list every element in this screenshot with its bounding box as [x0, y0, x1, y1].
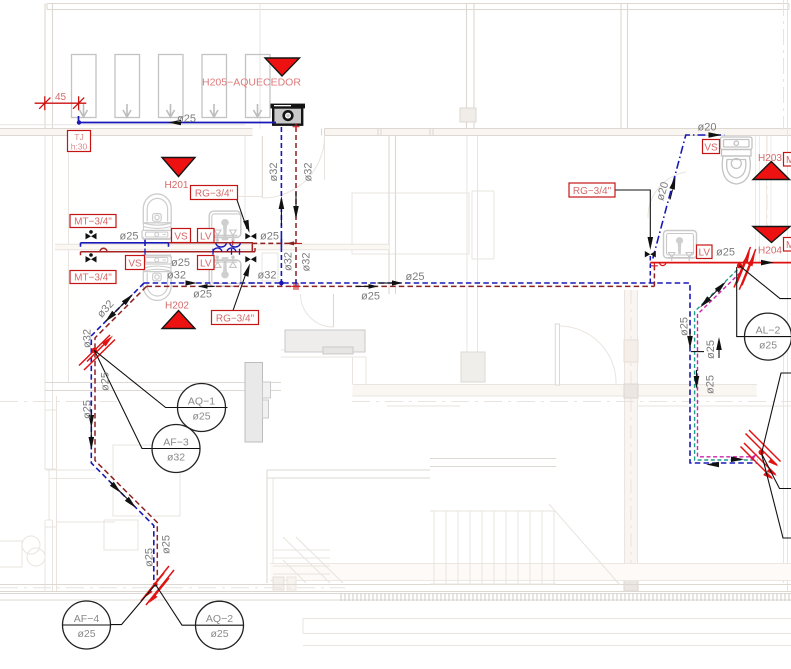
- svg-text:ø25: ø25: [716, 247, 735, 259]
- svg-text:H201: H201: [165, 180, 189, 191]
- svg-text:RG−3/4": RG−3/4": [216, 314, 255, 325]
- svg-text:AQ−2: AQ−2: [206, 613, 233, 625]
- svg-text:ø32: ø32: [167, 452, 185, 464]
- svg-text:ø25: ø25: [171, 257, 190, 269]
- svg-text:MT−3/4": MT−3/4": [74, 217, 112, 228]
- svg-text:ø25: ø25: [705, 340, 717, 359]
- svg-text:ø25: ø25: [260, 231, 279, 243]
- svg-text:ø25: ø25: [144, 548, 156, 567]
- svg-text:ø25: ø25: [192, 411, 210, 423]
- svg-text:ø25: ø25: [77, 628, 95, 640]
- svg-text:AF−3: AF−3: [163, 437, 189, 449]
- svg-text:h:30: h:30: [71, 142, 88, 152]
- svg-text:RG−3/4": RG−3/4": [195, 189, 234, 200]
- svg-text:AQ−1: AQ−1: [188, 396, 215, 408]
- svg-text:ø25: ø25: [100, 372, 112, 391]
- svg-text:ø32: ø32: [167, 270, 186, 282]
- svg-text:M: M: [786, 155, 791, 166]
- svg-text:ø32: ø32: [268, 163, 280, 182]
- svg-text:ø25: ø25: [210, 628, 228, 640]
- svg-text:ø32: ø32: [283, 252, 295, 271]
- svg-text:ø25: ø25: [82, 400, 94, 419]
- svg-text:ø32: ø32: [301, 253, 313, 272]
- svg-text:ø25: ø25: [193, 289, 212, 301]
- svg-text:M: M: [786, 240, 791, 251]
- svg-text:ø25: ø25: [161, 535, 173, 554]
- svg-text:ø20: ø20: [698, 122, 717, 134]
- svg-text:ø32: ø32: [303, 163, 315, 182]
- svg-text:ø32: ø32: [258, 270, 277, 282]
- svg-text:H203: H203: [758, 153, 782, 164]
- svg-text:RG−3/4": RG−3/4": [573, 186, 612, 197]
- svg-text:ø25: ø25: [120, 231, 139, 243]
- svg-text:ø25: ø25: [679, 317, 691, 336]
- svg-text:VS: VS: [704, 143, 718, 154]
- svg-text:45: 45: [55, 92, 67, 103]
- svg-text:TJ: TJ: [74, 132, 83, 142]
- svg-text:ø25: ø25: [361, 291, 380, 303]
- svg-text:ø25: ø25: [406, 271, 425, 283]
- svg-text:H205−AQUECEDOR: H205−AQUECEDOR: [202, 77, 301, 89]
- svg-text:AF−4: AF−4: [74, 613, 100, 625]
- svg-text:LV: LV: [200, 232, 212, 243]
- svg-text:VS: VS: [128, 259, 142, 270]
- svg-text:H202: H202: [165, 301, 189, 312]
- svg-text:LV: LV: [200, 259, 212, 270]
- svg-text:LV: LV: [699, 248, 711, 259]
- svg-text:H204: H204: [758, 246, 782, 257]
- svg-text:AL−2: AL−2: [756, 325, 781, 337]
- svg-text:ø25: ø25: [705, 375, 717, 394]
- svg-text:ø25: ø25: [177, 113, 196, 125]
- svg-text:MT−3/4": MT−3/4": [74, 273, 112, 284]
- svg-text:ø25: ø25: [759, 340, 777, 352]
- svg-text:ø32: ø32: [82, 329, 94, 348]
- svg-text:VS: VS: [174, 232, 188, 243]
